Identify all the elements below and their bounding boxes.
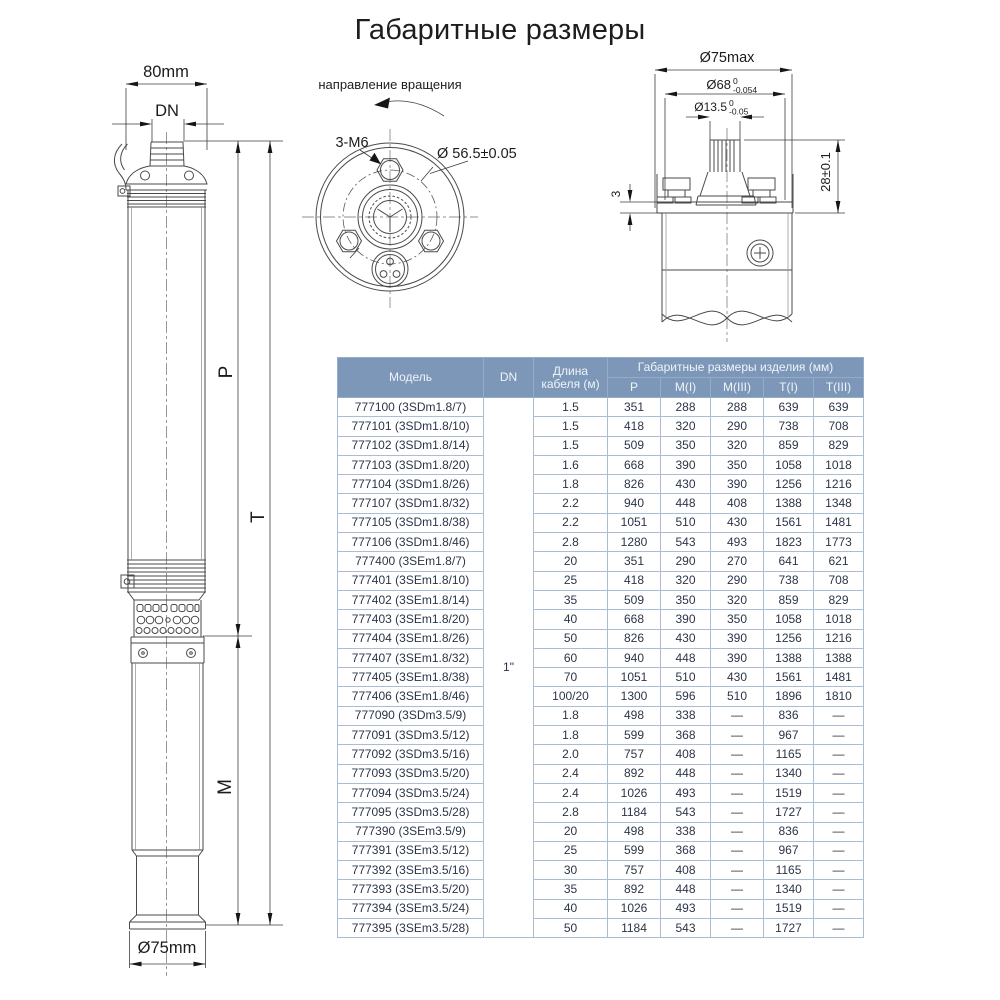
tiii-cell: 1773 [814, 533, 864, 552]
model-cell: 777395 (3SEm3.5/28) [338, 919, 484, 938]
p-cell: 826 [608, 475, 661, 494]
model-cell: 777090 (3SDm3.5/9) [338, 706, 484, 725]
mi-cell: 510 [661, 513, 711, 532]
miii-cell: — [711, 764, 764, 783]
model-cell: 777393 (3SEm3.5/20) [338, 880, 484, 899]
cable-length-cell: 40 [534, 610, 608, 629]
pump-body-outline [114, 142, 207, 929]
miii-cell: 430 [711, 513, 764, 532]
model-cell: 777404 (3SEm1.8/26) [338, 629, 484, 648]
table-row: 777095 (3SDm3.5/28)2.81184543—1727— [338, 803, 864, 822]
cable-length-cell: 1.5 [534, 417, 608, 436]
table-row: 777092 (3SDm3.5/16)2.0757408—1165— [338, 745, 864, 764]
miii-cell: 320 [711, 436, 764, 455]
p-cell: 826 [608, 629, 661, 648]
mi-cell: 350 [661, 436, 711, 455]
p-cell: 418 [608, 417, 661, 436]
tiii-cell: — [814, 745, 864, 764]
ti-cell: 836 [764, 822, 814, 841]
table-row: 777393 (3SEm3.5/20)35892448—1340— [338, 880, 864, 899]
table-row: 777090 (3SDm3.5/9)1.8498338—836— [338, 706, 864, 725]
col-header-tiii: T(III) [814, 378, 864, 398]
cable-length-cell: 20 [534, 552, 608, 571]
col-header-dn: DN [484, 358, 534, 398]
table-row: 777401 (3SEm1.8/10)25418320290738708 [338, 571, 864, 590]
table-row: 777403 (3SEm1.8/20)4066839035010581018 [338, 610, 864, 629]
cable-length-cell: 35 [534, 880, 608, 899]
cable-length-cell: 1.5 [534, 436, 608, 455]
table-row: 777402 (3SEm1.8/14)35509350320859829 [338, 590, 864, 609]
table-body: 777100 (3SDm1.8/7)1"1.535128828863963977… [338, 398, 864, 938]
model-cell: 777392 (3SEm3.5/16) [338, 861, 484, 880]
ti-cell: 1388 [764, 648, 814, 667]
miii-cell: 493 [711, 533, 764, 552]
tiii-cell: 1810 [814, 687, 864, 706]
ti-cell: 1519 [764, 783, 814, 802]
miii-cell: — [711, 861, 764, 880]
cable-length-cell: 2.8 [534, 803, 608, 822]
p-cell: 892 [608, 764, 661, 783]
tiii-cell: — [814, 899, 864, 918]
dim-3-label: 3 [609, 190, 623, 197]
table-row: 777394 (3SEm3.5/24)401026493—1519— [338, 899, 864, 918]
ti-cell: 836 [764, 706, 814, 725]
miii-cell: — [711, 726, 764, 745]
tiii-cell: — [814, 919, 864, 938]
ti-cell: 1340 [764, 880, 814, 899]
p-cell: 1184 [608, 803, 661, 822]
p-cell: 599 [608, 841, 661, 860]
p-cell: 599 [608, 726, 661, 745]
tiii-cell: — [814, 706, 864, 725]
top-view-leaders [350, 101, 468, 258]
table-row: 777391 (3SEm3.5/12)25599368—967— [338, 841, 864, 860]
top-view-arrows [370, 98, 391, 165]
mi-cell: 596 [661, 687, 711, 706]
p-cell: 1184 [608, 919, 661, 938]
dim-75max-label: Ø75max [700, 50, 756, 66]
ti-cell: 1058 [764, 455, 814, 474]
tiii-cell: 1018 [814, 610, 864, 629]
miii-cell: — [711, 745, 764, 764]
dim-28-label: 28±0.1 [818, 152, 833, 192]
dim-68-label: Ø68 [706, 77, 731, 92]
model-cell: 777406 (3SEm1.8/46) [338, 687, 484, 706]
miii-cell: 408 [711, 494, 764, 513]
p-cell: 1051 [608, 513, 661, 532]
cable-length-cell: 1.8 [534, 706, 608, 725]
p-cell: 1051 [608, 668, 661, 687]
p-cell: 940 [608, 494, 661, 513]
model-cell: 777405 (3SEm1.8/38) [338, 668, 484, 687]
cable-length-cell: 2.0 [534, 745, 608, 764]
mi-cell: 368 [661, 726, 711, 745]
ti-cell: 1256 [764, 475, 814, 494]
tiii-cell: 1216 [814, 475, 864, 494]
miii-cell: — [711, 783, 764, 802]
miii-cell: — [711, 706, 764, 725]
p-cell: 351 [608, 398, 661, 417]
dim-m-label: M [215, 779, 236, 795]
tiii-cell: — [814, 880, 864, 899]
p-cell: 509 [608, 590, 661, 609]
tiii-cell: — [814, 822, 864, 841]
miii-cell: — [711, 803, 764, 822]
miii-cell: 270 [711, 552, 764, 571]
tiii-cell: 829 [814, 590, 864, 609]
model-cell: 777401 (3SEm1.8/10) [338, 571, 484, 590]
miii-cell: 350 [711, 455, 764, 474]
tiii-cell: 1348 [814, 494, 864, 513]
dim-dn-label: DN [155, 102, 179, 120]
coupling-outline [657, 140, 793, 325]
col-header-group: Габаритные размеры изделия (мм) [608, 358, 864, 378]
ti-cell: 641 [764, 552, 814, 571]
p-cell: 351 [608, 552, 661, 571]
p-cell: 498 [608, 706, 661, 725]
table-row: 777400 (3SEm1.8/7)20351290270641621 [338, 552, 864, 571]
table-row: 777395 (3SEm3.5/28)501184543—1727— [338, 919, 864, 938]
dim-68-tol-bottom: -0.054 [733, 85, 757, 95]
table-row: 777102 (3SDm1.8/14)1.5509350320859829 [338, 436, 864, 455]
mi-cell: 448 [661, 494, 711, 513]
cable-length-cell: 70 [534, 668, 608, 687]
mi-cell: 493 [661, 899, 711, 918]
tiii-cell: — [814, 861, 864, 880]
table-header: Модель DN Длина кабеля (м) Габаритные ра… [338, 358, 864, 398]
model-cell: 777104 (3SDm1.8/26) [338, 475, 484, 494]
tiii-cell: — [814, 841, 864, 860]
mi-cell: 320 [661, 571, 711, 590]
dim-13-5-label: Ø13.5 [694, 100, 727, 114]
miii-cell: 288 [711, 398, 764, 417]
dim-13-5-tol-bottom: -0.05 [729, 107, 749, 117]
dim-75mm-label: Ø75mm [138, 939, 197, 957]
cable-length-cell: 50 [534, 629, 608, 648]
miii-cell: 390 [711, 629, 764, 648]
model-cell: 777105 (3SDm1.8/38) [338, 513, 484, 532]
ti-cell: 639 [764, 398, 814, 417]
cable-length-cell: 40 [534, 899, 608, 918]
mi-cell: 408 [661, 745, 711, 764]
col-header-mi: M(I) [661, 378, 711, 398]
miii-cell: — [711, 899, 764, 918]
tiii-cell: 1018 [814, 455, 864, 474]
ti-cell: 1823 [764, 533, 814, 552]
table-row: 777093 (3SDm3.5/20)2.4892448—1340— [338, 764, 864, 783]
cable-length-cell: 1.5 [534, 398, 608, 417]
ti-cell: 1561 [764, 668, 814, 687]
cable-length-cell: 1.8 [534, 475, 608, 494]
ti-cell: 738 [764, 417, 814, 436]
table-row: 777091 (3SDm3.5/12)1.8599368—967— [338, 726, 864, 745]
table-row: 777100 (3SDm1.8/7)1"1.5351288288639639 [338, 398, 864, 417]
table-row: 777390 (3SEm3.5/9)20498338—836— [338, 822, 864, 841]
miii-cell: 350 [711, 610, 764, 629]
tiii-cell: 621 [814, 552, 864, 571]
model-cell: 777400 (3SEm1.8/7) [338, 552, 484, 571]
p-cell: 757 [608, 745, 661, 764]
tiii-cell: — [814, 783, 864, 802]
tiii-cell: 1481 [814, 513, 864, 532]
cable-length-cell: 50 [534, 919, 608, 938]
cable-length-cell: 25 [534, 571, 608, 590]
model-cell: 777095 (3SDm3.5/28) [338, 803, 484, 822]
pitch-circle-label: Ø 56.5±0.05 [437, 146, 517, 162]
table-row: 777106 (3SDm1.8/46)2.8128054349318231773 [338, 533, 864, 552]
tiii-cell: 1388 [814, 648, 864, 667]
ti-cell: 1388 [764, 494, 814, 513]
ti-cell: 1256 [764, 629, 814, 648]
side-view-dimension-lines [112, 84, 283, 968]
ti-cell: 1340 [764, 764, 814, 783]
motor-coupling-drawing: Ø75max Ø68 0 -0.054 Ø13.5 0 -0.05 3 28±0… [600, 42, 870, 345]
tiii-cell: — [814, 764, 864, 783]
dn-cell: 1" [484, 398, 534, 938]
mi-cell: 408 [661, 861, 711, 880]
cable-length-cell: 60 [534, 648, 608, 667]
tiii-cell: 708 [814, 571, 864, 590]
cable-length-cell: 30 [534, 861, 608, 880]
model-cell: 777391 (3SEm3.5/12) [338, 841, 484, 860]
ti-cell: 1165 [764, 861, 814, 880]
model-cell: 777107 (3SDm1.8/32) [338, 494, 484, 513]
mi-cell: 350 [661, 590, 711, 609]
p-cell: 418 [608, 571, 661, 590]
p-cell: 1026 [608, 783, 661, 802]
model-cell: 777407 (3SEm1.8/32) [338, 648, 484, 667]
mi-cell: 390 [661, 610, 711, 629]
p-cell: 757 [608, 861, 661, 880]
mi-cell: 368 [661, 841, 711, 860]
mi-cell: 338 [661, 822, 711, 841]
cable-length-cell: 2.2 [534, 494, 608, 513]
col-header-model: Модель [338, 358, 484, 398]
ti-cell: 1727 [764, 803, 814, 822]
miii-cell: 290 [711, 417, 764, 436]
col-header-miii: M(III) [711, 378, 764, 398]
model-cell: 777390 (3SEm3.5/9) [338, 822, 484, 841]
cable-length-cell: 2.8 [534, 533, 608, 552]
cable-length-cell: 20 [534, 822, 608, 841]
miii-cell: — [711, 880, 764, 899]
tiii-cell: 708 [814, 417, 864, 436]
dim-p-label: P [216, 366, 237, 379]
miii-cell: 290 [711, 571, 764, 590]
tiii-cell: 639 [814, 398, 864, 417]
mi-cell: 430 [661, 475, 711, 494]
cable-length-cell: 2.2 [534, 513, 608, 532]
cable-length-cell: 100/20 [534, 687, 608, 706]
table-row: 777103 (3SDm1.8/20)1.666839035010581018 [338, 455, 864, 474]
mi-cell: 510 [661, 668, 711, 687]
ti-cell: 1727 [764, 919, 814, 938]
ti-cell: 967 [764, 841, 814, 860]
ti-cell: 1058 [764, 610, 814, 629]
tiii-cell: 1216 [814, 629, 864, 648]
pump-top-view-drawing: направление вращения 3-M6 Ø 56.5±0.05 [295, 60, 545, 330]
miii-cell: — [711, 841, 764, 860]
table-row: 777407 (3SEm1.8/32)6094044839013881388 [338, 648, 864, 667]
mi-cell: 338 [661, 706, 711, 725]
tiii-cell: 1481 [814, 668, 864, 687]
model-cell: 777403 (3SEm1.8/20) [338, 610, 484, 629]
miii-cell: — [711, 822, 764, 841]
table-row: 777105 (3SDm1.8/38)2.2105151043015611481 [338, 513, 864, 532]
model-cell: 777092 (3SDm3.5/16) [338, 745, 484, 764]
model-cell: 777091 (3SDm3.5/12) [338, 726, 484, 745]
ti-cell: 1896 [764, 687, 814, 706]
table-row: 777094 (3SDm3.5/24)2.41026493—1519— [338, 783, 864, 802]
model-cell: 777102 (3SDm1.8/14) [338, 436, 484, 455]
cable-length-cell: 2.4 [534, 764, 608, 783]
p-cell: 668 [608, 455, 661, 474]
p-cell: 1300 [608, 687, 661, 706]
cable-length-cell: 1.6 [534, 455, 608, 474]
p-cell: 1026 [608, 899, 661, 918]
mi-cell: 390 [661, 455, 711, 474]
table-row: 777404 (3SEm1.8/26)5082643039012561216 [338, 629, 864, 648]
mi-cell: 320 [661, 417, 711, 436]
model-cell: 777106 (3SDm1.8/46) [338, 533, 484, 552]
tiii-cell: — [814, 803, 864, 822]
p-cell: 509 [608, 436, 661, 455]
p-cell: 940 [608, 648, 661, 667]
table-row: 777405 (3SEm1.8/38)70105151043015611481 [338, 668, 864, 687]
cable-length-cell: 1.8 [534, 726, 608, 745]
rotation-direction-label: направление вращения [318, 77, 461, 92]
model-cell: 777394 (3SEm3.5/24) [338, 899, 484, 918]
tiii-cell: — [814, 726, 864, 745]
dim-t-label: T [248, 511, 269, 523]
table-row: 777101 (3SDm1.8/10)1.5418320290738708 [338, 417, 864, 436]
miii-cell: 390 [711, 648, 764, 667]
ti-cell: 738 [764, 571, 814, 590]
mi-cell: 493 [661, 783, 711, 802]
model-cell: 777093 (3SDm3.5/20) [338, 764, 484, 783]
miii-cell: 430 [711, 668, 764, 687]
ti-cell: 967 [764, 726, 814, 745]
miii-cell: 390 [711, 475, 764, 494]
mi-cell: 448 [661, 880, 711, 899]
ti-cell: 859 [764, 436, 814, 455]
mi-cell: 448 [661, 648, 711, 667]
mi-cell: 288 [661, 398, 711, 417]
table-row: 777392 (3SEm3.5/16)30757408—1165— [338, 861, 864, 880]
cable-length-cell: 2.4 [534, 783, 608, 802]
model-cell: 777103 (3SDm1.8/20) [338, 455, 484, 474]
col-header-ti: T(I) [764, 378, 814, 398]
p-cell: 498 [608, 822, 661, 841]
col-header-p: P [608, 378, 661, 398]
p-cell: 1280 [608, 533, 661, 552]
mi-cell: 290 [661, 552, 711, 571]
table-row: 777104 (3SDm1.8/26)1.882643039012561216 [338, 475, 864, 494]
mi-cell: 543 [661, 919, 711, 938]
tiii-cell: 829 [814, 436, 864, 455]
model-cell: 777094 (3SDm3.5/24) [338, 783, 484, 802]
ti-cell: 1165 [764, 745, 814, 764]
mi-cell: 430 [661, 629, 711, 648]
thread-3m6-label: 3-M6 [335, 135, 368, 151]
miii-cell: 510 [711, 687, 764, 706]
mi-cell: 543 [661, 803, 711, 822]
mi-cell: 543 [661, 533, 711, 552]
p-cell: 892 [608, 880, 661, 899]
model-cell: 777100 (3SDm1.8/7) [338, 398, 484, 417]
model-cell: 777101 (3SDm1.8/10) [338, 417, 484, 436]
miii-cell: 320 [711, 590, 764, 609]
ti-cell: 859 [764, 590, 814, 609]
miii-cell: — [711, 919, 764, 938]
mi-cell: 448 [661, 764, 711, 783]
col-header-cable: Длина кабеля (м) [534, 358, 608, 398]
dim-80mm-label: 80mm [143, 63, 189, 81]
p-cell: 668 [608, 610, 661, 629]
cable-length-cell: 35 [534, 590, 608, 609]
pump-side-view-drawing: 80mm DN P T M Ø75mm [0, 0, 300, 1000]
ti-cell: 1561 [764, 513, 814, 532]
cable-length-cell: 25 [534, 841, 608, 860]
table-row: 777406 (3SEm1.8/46)100/20130059651018961… [338, 687, 864, 706]
model-cell: 777402 (3SEm1.8/14) [338, 590, 484, 609]
ti-cell: 1519 [764, 899, 814, 918]
table-row: 777107 (3SDm1.8/32)2.294044840813881348 [338, 494, 864, 513]
dimensions-table: Модель DN Длина кабеля (м) Габаритные ра… [337, 357, 864, 938]
